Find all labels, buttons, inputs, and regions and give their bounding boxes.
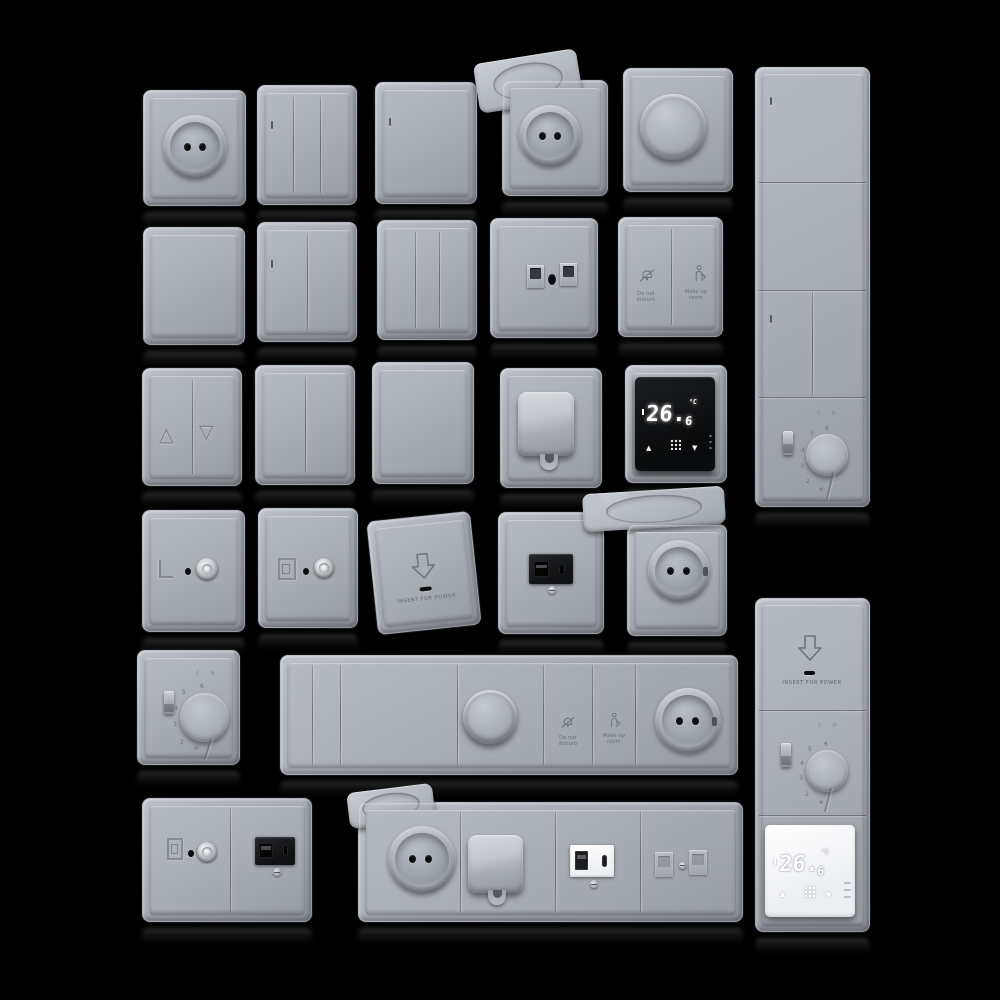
socket-pin-hole xyxy=(554,132,561,140)
rocker-divider xyxy=(305,377,306,473)
floor-reflection xyxy=(143,212,246,228)
socket-pin-hole xyxy=(425,855,432,863)
ir-hole xyxy=(188,850,194,857)
floor-reflection xyxy=(618,343,723,359)
thermostat-dial xyxy=(180,693,229,742)
temp-down-button: ▼ xyxy=(826,892,831,899)
day-mode-icon: ☼ xyxy=(832,723,837,729)
make-up-room-label: Make up room xyxy=(588,733,640,745)
socket-pin-hole xyxy=(539,132,546,140)
switch-face xyxy=(385,228,469,332)
floor-reflection xyxy=(500,494,602,510)
floor-reflection xyxy=(257,348,357,364)
temperature-decimal: 6 xyxy=(685,415,693,428)
dial-number: 6 xyxy=(200,684,204,690)
tv-sat-socket xyxy=(258,508,358,628)
rocker-indicator xyxy=(271,260,273,268)
rocker-divider xyxy=(192,380,193,474)
blinds-switch: △ ▽ xyxy=(142,368,242,486)
heating-indicator xyxy=(642,409,644,415)
do-not-disturb-label-line2: disturb xyxy=(542,741,594,747)
do-not-disturb-icon xyxy=(559,713,577,731)
horizontal-multiframe-1: Do not disturb Make up room xyxy=(280,655,738,775)
thermostat-screen-white: 26. 6 °C ▲ ▼ xyxy=(765,825,855,917)
fixing-screw xyxy=(273,868,281,876)
section-divider xyxy=(759,815,866,816)
dial-number: 4 xyxy=(174,706,178,712)
temperature-unit: °C xyxy=(821,849,829,856)
dimmer-knob xyxy=(463,690,517,744)
keystone-jack xyxy=(560,263,577,286)
dial-number: 4 xyxy=(800,761,804,767)
weatherproof-socket-open xyxy=(627,524,727,636)
dial-number: 2 xyxy=(180,740,184,746)
socket-pin-hole xyxy=(199,143,206,151)
section-divider xyxy=(759,710,866,711)
tv-corner-mark xyxy=(159,560,173,578)
socket-recess xyxy=(648,540,710,602)
switch-face xyxy=(265,230,349,334)
dimmer-plate xyxy=(623,68,733,192)
floor-reflection xyxy=(627,642,727,658)
section-divider xyxy=(555,812,556,912)
socket-recess xyxy=(163,115,227,179)
rocker-indicator xyxy=(271,121,273,129)
temperature-reading: 26. xyxy=(645,403,686,427)
cable-outlet-plate xyxy=(500,368,602,488)
do-not-disturb-label: Do not disturb xyxy=(542,735,594,747)
socket-pin-hole xyxy=(409,855,416,863)
keycard-power-switch: INSERT FOR POWER xyxy=(366,511,481,635)
section-divider xyxy=(543,665,544,765)
temperature-unit: °C xyxy=(689,399,697,406)
frost-icon: ❄ xyxy=(819,800,823,806)
temperature-decimal: 6 xyxy=(817,865,825,878)
section-divider xyxy=(635,665,636,765)
switch-face xyxy=(383,90,469,196)
section-divider xyxy=(340,665,341,765)
usb-a-port xyxy=(259,843,273,858)
ir-hole xyxy=(303,568,309,575)
frost-icon: ❄ xyxy=(819,487,823,493)
rocker-divider xyxy=(307,234,308,330)
usb-module-black xyxy=(529,554,573,584)
socket-eu-plate xyxy=(143,90,246,206)
dial-number: 3 xyxy=(800,464,804,470)
section-divider xyxy=(230,808,231,912)
center-screw xyxy=(679,862,686,869)
tv-sat-socket xyxy=(142,510,245,632)
fixing-screw xyxy=(590,880,598,888)
digital-thermostat-black: 26. 6 °C ▲ ▼ xyxy=(625,365,727,483)
floor-reflection xyxy=(358,928,743,944)
switch-3gang xyxy=(257,85,357,205)
card-slot xyxy=(804,671,815,675)
rocker-divider xyxy=(439,232,440,328)
usb-a-port xyxy=(534,561,549,577)
make-up-room-label-line2: room xyxy=(670,295,722,301)
coax-connector xyxy=(314,558,334,578)
make-up-room-icon xyxy=(606,711,624,729)
usb-c-port xyxy=(602,855,607,867)
render-scene: ☾ ☼ 6 5 4 3 2 ❄ xyxy=(0,0,1000,1000)
floor-reflection xyxy=(255,491,355,507)
frost-icon: ❄ xyxy=(194,746,198,752)
socket-pin-hole xyxy=(683,567,690,575)
section-divider xyxy=(759,397,866,398)
usb-module-black xyxy=(255,837,295,865)
menu-dots-icon xyxy=(804,886,815,897)
section-divider xyxy=(312,665,313,765)
earth-clip xyxy=(712,717,717,726)
socket-pin-hole xyxy=(667,567,674,575)
rocker-indicator xyxy=(389,118,391,126)
switch-2gang xyxy=(255,365,355,485)
dial-number: 4 xyxy=(801,448,805,454)
make-up-room-label: Make up room xyxy=(670,289,722,301)
socket-recess xyxy=(655,688,721,754)
dial-number: 6 xyxy=(824,742,828,748)
keystone-jack-blank xyxy=(655,852,673,877)
thermostat-switch-lever xyxy=(164,691,174,714)
socket-pin-hole xyxy=(676,717,683,725)
rocker-divider xyxy=(671,229,672,325)
section-divider xyxy=(457,665,458,765)
rocker-divider xyxy=(320,97,321,193)
thermostat-screen: 26. 6 °C ▲ ▼ xyxy=(635,377,715,471)
section-divider xyxy=(759,182,866,183)
blank-face xyxy=(151,235,237,337)
data-socket-plate xyxy=(490,218,598,338)
floor-reflection xyxy=(142,928,312,944)
socket-well xyxy=(662,695,714,747)
hotel-service-switch: Do not disturb Make up room xyxy=(618,217,723,337)
usb-c-port xyxy=(559,564,565,575)
dial-number: 3 xyxy=(173,722,177,728)
section-divider xyxy=(460,812,461,912)
section-divider xyxy=(640,812,641,912)
floor-reflection xyxy=(372,490,474,506)
socket-well xyxy=(655,547,703,595)
usb-a-port xyxy=(575,851,588,870)
switch-face xyxy=(263,373,347,477)
thermostat-switch-lever xyxy=(783,431,793,455)
temp-up-button: ▲ xyxy=(780,891,785,898)
socket-well xyxy=(526,112,574,160)
switch-face xyxy=(380,370,466,476)
coax-connector xyxy=(197,842,217,862)
night-mode-icon: ☾ xyxy=(196,671,201,677)
switch-1gang xyxy=(375,82,477,204)
floor-reflection xyxy=(490,344,598,360)
dial-number: 5 xyxy=(810,431,814,437)
keystone-jack xyxy=(527,265,544,288)
thermostat-switch-lever xyxy=(781,743,791,767)
floor-reflection xyxy=(377,346,477,362)
tv-screen-mark xyxy=(167,838,183,860)
floor-reflection xyxy=(280,781,738,797)
dial-number: 2 xyxy=(805,792,809,798)
rocker-indicator xyxy=(770,97,772,105)
do-not-disturb-icon xyxy=(637,265,657,285)
day-mode-icon: ☼ xyxy=(831,411,836,417)
switch-1gang xyxy=(372,362,474,484)
coax-connector xyxy=(196,558,218,580)
floor-reflection xyxy=(625,489,727,505)
dimmer-knob xyxy=(640,94,706,160)
do-not-disturb-label-line2: disturb xyxy=(620,297,672,303)
floor-reflection xyxy=(375,210,477,226)
temperature-reading: 26. xyxy=(778,853,819,877)
floor-reflection xyxy=(498,640,604,656)
blank-plate xyxy=(143,227,245,345)
coax-hole xyxy=(548,274,556,285)
floor-reflection xyxy=(142,492,242,508)
blinds-down-icon: ▽ xyxy=(199,423,214,442)
dial-number: 5 xyxy=(808,747,812,753)
floor-reflection xyxy=(502,202,608,218)
rocker-divider xyxy=(812,292,813,395)
switch-3gang-narrow xyxy=(377,220,477,340)
floor-reflection xyxy=(623,198,733,214)
socket-recess xyxy=(388,826,456,894)
temp-up-button: ▲ xyxy=(646,445,651,452)
tv-usb-combo-plate xyxy=(142,798,312,922)
keystone-jack-blank xyxy=(689,850,707,875)
night-mode-icon: ☾ xyxy=(818,723,823,729)
analog-thermostat: ☾ ☼ 6 5 4 3 2 ❄ xyxy=(137,650,240,765)
socket-recess xyxy=(519,105,581,167)
socket-well xyxy=(395,833,448,886)
cable-outlet-hood xyxy=(468,835,523,893)
usb-c-port xyxy=(283,845,288,856)
heating-indicator xyxy=(774,859,776,865)
socket-pin-hole xyxy=(692,717,699,725)
ir-hole xyxy=(185,568,191,575)
insert-for-power-label: INSERT FOR POWER xyxy=(757,680,867,686)
floor-reflection xyxy=(137,771,240,787)
floor-reflection xyxy=(755,513,870,529)
horizontal-multiframe-2 xyxy=(358,802,743,922)
insert-card-arrow-icon xyxy=(409,551,438,582)
section-divider xyxy=(759,290,866,291)
thermostat-dial xyxy=(806,750,848,792)
menu-dots-icon xyxy=(670,439,681,450)
night-mode-icon: ☾ xyxy=(817,411,822,417)
floor-reflection xyxy=(142,638,245,654)
socket-with-flip-lid xyxy=(502,80,608,196)
vertical-multiframe-2: INSERT FOR POWER ☾ ☼ 6 5 4 3 2 ❄ 26. 6 °… xyxy=(755,598,870,932)
socket-well xyxy=(170,122,220,172)
switch-2gang xyxy=(257,222,357,342)
fixing-screw xyxy=(548,586,556,594)
switch-face xyxy=(265,93,349,197)
usb-module-white xyxy=(570,845,614,877)
floor-reflection xyxy=(258,634,358,650)
do-not-disturb-label: Do not disturb xyxy=(620,291,672,303)
section-divider xyxy=(592,665,593,765)
floor-reflection xyxy=(257,211,357,227)
blinds-up-icon: △ xyxy=(159,426,174,445)
rocker-indicator xyxy=(770,315,772,323)
dial-number: 2 xyxy=(806,479,810,485)
dial-number: 5 xyxy=(182,690,186,696)
cable-outlet-hood xyxy=(518,392,574,456)
floor-reflection xyxy=(755,938,870,954)
vertical-multiframe-1: ☾ ☼ 6 5 4 3 2 ❄ xyxy=(755,67,870,507)
socket-pin-hole xyxy=(184,143,191,151)
tv-screen-mark xyxy=(278,558,296,580)
make-up-room-icon xyxy=(690,263,710,283)
side-led-indicators xyxy=(709,433,712,449)
side-vents xyxy=(844,882,851,900)
thermostat-dial xyxy=(806,434,848,476)
insert-card-arrow-icon xyxy=(797,634,823,662)
rocker-divider xyxy=(293,97,294,193)
day-mode-icon: ☼ xyxy=(210,671,215,677)
dial-number: 6 xyxy=(825,426,829,432)
earth-clip xyxy=(703,567,708,576)
make-up-room-label-line2: room xyxy=(588,739,640,745)
floor-reflection xyxy=(143,351,245,367)
dial-number: 3 xyxy=(799,776,803,782)
temp-down-button: ▼ xyxy=(692,445,697,452)
rocker-divider xyxy=(415,232,416,328)
